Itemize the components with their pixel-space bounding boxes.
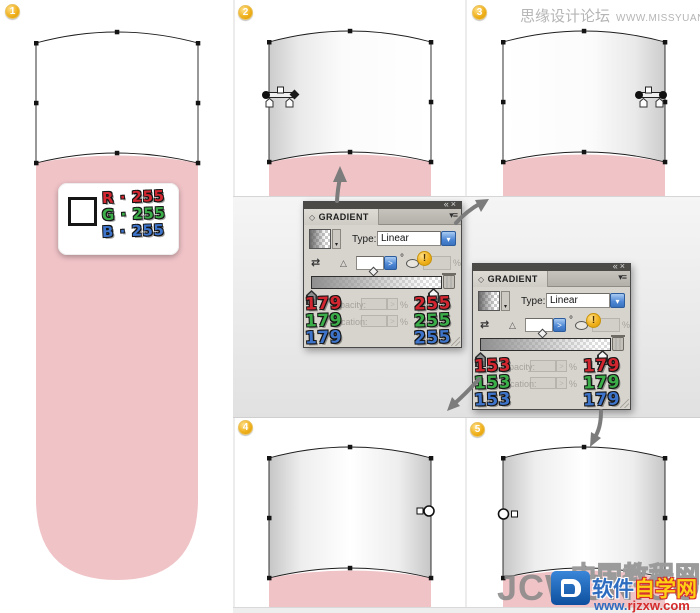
reverse-gradient-icon[interactable]: ⇄ (311, 256, 320, 269)
gradient-panel-1: «× ◇GRADIENT ▾≡ ▾ Type: Linear ▾ ⇄ △ > °… (303, 201, 462, 348)
gradient-endpoint-widget (499, 509, 518, 519)
panel-body: ▾ Type: Linear ▾ ⇄ △ > ° % ! Opacity: > … (473, 287, 630, 409)
delete-stop-button[interactable] (612, 337, 624, 351)
gradient-swatch-dropdown[interactable]: ▾ (501, 291, 510, 311)
tab-label: GRADIENT (319, 212, 369, 222)
url-www: www. (594, 598, 627, 613)
right-stop-blue-value: 255 (414, 327, 452, 348)
panel-titlebar-icons: «× (444, 199, 458, 209)
step4-artwork (233, 418, 467, 613)
url-domain: rjzxw.com (627, 598, 689, 613)
left-stop-blue-value: 153 (474, 389, 512, 410)
angle-spinner-button[interactable]: > (553, 318, 566, 332)
delete-stop-button[interactable] (443, 275, 455, 289)
angle-field[interactable] (525, 318, 553, 332)
panel-collapse-diamond-icon: ◇ (478, 275, 485, 284)
alert-marker: ! (417, 251, 432, 266)
left-stop-blue-value: 179 (305, 327, 343, 348)
degree-symbol: ° (400, 253, 404, 264)
panel-menu-icon[interactable]: ▾≡ (449, 210, 457, 221)
gradient-swatch[interactable] (478, 291, 500, 311)
top-band-shape (36, 32, 198, 163)
type-label: Type: (352, 234, 376, 245)
aspect-percent: % (453, 258, 461, 268)
alert-marker: ! (586, 313, 601, 328)
type-label: Type: (521, 296, 545, 307)
gradient-swatch-dropdown[interactable]: ▾ (332, 229, 341, 249)
watermark-site-url: WWW.MISSYUAN.COM (616, 13, 700, 24)
type-select[interactable]: Linear (546, 293, 610, 308)
type-select-arrow[interactable]: ▾ (441, 231, 456, 246)
opacity-spinner-button: > (556, 360, 567, 372)
angle-field[interactable] (356, 256, 384, 270)
watermark-site-name: 思缘设计论坛 (520, 8, 610, 25)
reverse-gradient-icon[interactable]: ⇄ (480, 318, 489, 331)
step-badge-1: 1 (5, 4, 20, 19)
location-percent: % (400, 317, 408, 327)
step1-artwork (0, 0, 233, 613)
watermark-missyuan: 思缘设计论坛WWW.MISSYUAN.COM (520, 5, 700, 26)
collapse-panel-icon[interactable]: « (444, 199, 451, 209)
gradient-slider[interactable] (311, 276, 442, 289)
gradient-endpoint-widget (417, 506, 434, 516)
panel-body: ▾ Type: Linear ▾ ⇄ △ > ° % ! Opacity: > … (304, 225, 461, 347)
watermark-rjzxw-url: www.rjzxw.com (594, 598, 690, 613)
collapse-panel-icon[interactable]: « (613, 261, 620, 271)
close-panel-icon[interactable]: × (620, 261, 627, 271)
tab-gradient[interactable]: ◇GRADIENT (473, 271, 548, 287)
white-color-swatch (68, 197, 97, 226)
step-badge-3: 3 (472, 5, 487, 20)
gradient-slider[interactable] (480, 338, 611, 351)
panel-titlebar: «× (304, 202, 461, 209)
panel-tabbar: ◇GRADIENT ▾≡ (473, 271, 630, 287)
rgb-value-blue: B · 255 (102, 223, 165, 240)
lipstick-base-shape (503, 155, 665, 197)
tutorial-screenshot: 1 2 3 4 5 R · 255 G · 255 B · 255 思缘设计论坛… (0, 0, 700, 613)
rgb-value-card: R · 255 G · 255 B · 255 (58, 183, 179, 255)
panel-titlebar-icons: «× (613, 261, 627, 271)
location-percent: % (569, 379, 577, 389)
aspect-percent: % (622, 320, 630, 330)
dropdown-arrow-icon: ▾ (335, 242, 338, 248)
gradient-panel-2: «× ◇GRADIENT ▾≡ ▾ Type: Linear ▾ ⇄ △ > °… (472, 263, 631, 410)
top-band-shape (269, 447, 431, 578)
dropdown-arrow-icon: ▾ (504, 304, 507, 310)
panel-resize-grip[interactable] (620, 399, 629, 408)
angle-spinner-button[interactable]: > (384, 256, 397, 270)
opacity-percent: % (400, 300, 408, 310)
angle-icon: △ (340, 258, 347, 269)
panel-collapse-diamond-icon: ◇ (309, 213, 316, 222)
opacity-percent: % (569, 362, 577, 372)
right-stop-blue-value: 179 (583, 389, 621, 410)
step3-artwork (467, 0, 700, 196)
rjzxw-logo (551, 571, 590, 605)
angle-icon: △ (509, 320, 516, 331)
panel-titlebar: «× (473, 264, 630, 271)
step-badge-5: 5 (470, 422, 485, 437)
degree-symbol: ° (569, 315, 573, 326)
step-badge-2: 2 (238, 5, 253, 20)
panel-menu-icon[interactable]: ▾≡ (618, 272, 626, 283)
location-spinner-button: > (556, 377, 567, 389)
rjzxw-logo-icon (561, 579, 581, 597)
tab-gradient[interactable]: ◇GRADIENT (304, 209, 379, 225)
type-select-arrow[interactable]: ▾ (610, 293, 625, 308)
gradient-swatch[interactable] (309, 229, 331, 249)
close-panel-icon[interactable]: × (451, 199, 458, 209)
lipstick-base-shape (269, 155, 431, 197)
step-badge-4: 4 (238, 420, 253, 435)
step2-artwork (233, 0, 467, 196)
opacity-spinner-button: > (387, 298, 398, 310)
tab-label: GRADIENT (488, 274, 538, 284)
location-spinner-button: > (387, 315, 398, 327)
panel-resize-grip[interactable] (451, 337, 460, 346)
type-select[interactable]: Linear (377, 231, 441, 246)
panel-tabbar: ◇GRADIENT ▾≡ (304, 209, 461, 225)
